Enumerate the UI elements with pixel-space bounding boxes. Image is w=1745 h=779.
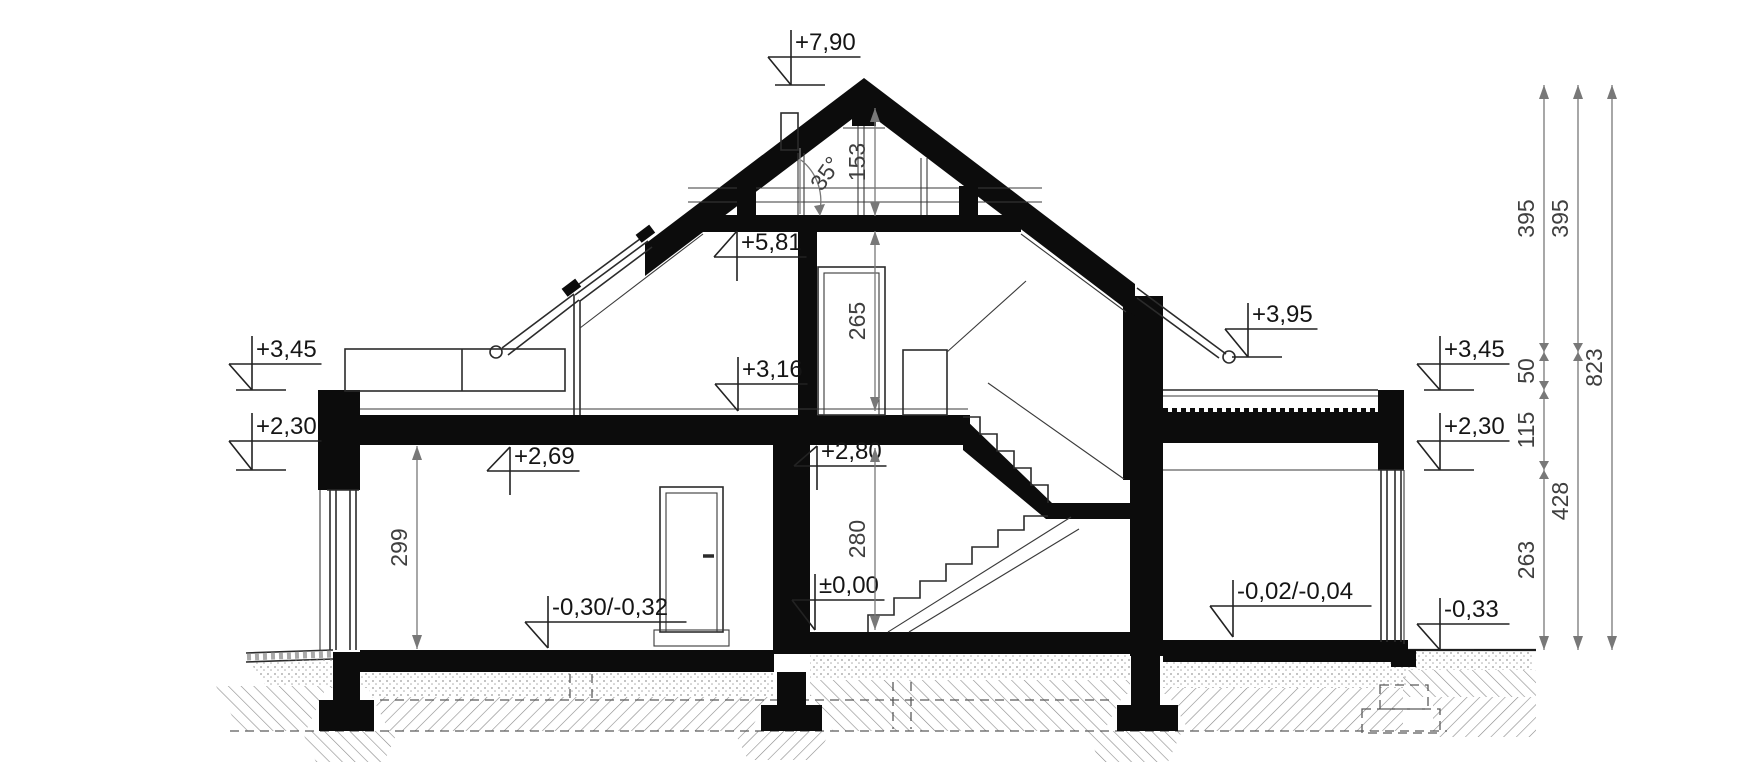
slab-right-room — [1163, 640, 1408, 662]
elevation-label-right-parapet: +3,45 — [1444, 336, 1505, 363]
marker-flag-diagonal — [714, 231, 737, 257]
elevation-marker-left-ceiling-beam: +2,30 — [229, 413, 322, 470]
ground-door-leaf — [666, 493, 717, 632]
elevation-marker-right-eave: +3,95 — [1225, 301, 1318, 357]
elevation-label-left-room-ceiling: +2,69 — [514, 443, 575, 470]
dim-label-left-room-height: 299 — [386, 528, 412, 566]
left-eave-fascia-band — [345, 349, 565, 391]
elevation-label-exterior-grade: -0,33 — [1444, 596, 1499, 623]
gutter-left — [490, 346, 502, 358]
marker-flag-diagonal — [1225, 329, 1248, 357]
roof-angle-label: 35° — [805, 152, 846, 195]
marker-flag-diagonal — [1417, 364, 1440, 390]
angle-arrowhead — [814, 204, 825, 216]
elevation-marker-right-beam: +2,30 — [1417, 413, 1510, 470]
elevation-marker-left-room-floor: -0,30/-0,32 — [525, 594, 687, 648]
elevation-marker-left-eave: +3,45 — [229, 336, 322, 390]
dim-label-gable-height: 153 — [844, 143, 870, 181]
marker-flag-diagonal — [1210, 606, 1233, 637]
architectural-section-drawing: +7,90+5,81+3,45+2,30+2,69+3,16+2,80+3,95… — [0, 0, 1745, 779]
elevation-marker-attic-ceiling: +5,81 — [714, 229, 807, 281]
ground-hatch-left-room — [333, 697, 773, 731]
elevation-marker-left-room-ceiling: +2,69 — [487, 443, 580, 495]
dim-label-attic-room-height: 265 — [844, 302, 870, 340]
marker-flag-diagonal — [1417, 624, 1440, 650]
elevation-label-attic-ceiling: +5,81 — [741, 229, 802, 256]
ground-hatch-hall — [810, 680, 1130, 731]
chain-2-segment-label: 428 — [1547, 482, 1573, 520]
elevation-label-ground-floor: ±0,00 — [819, 572, 879, 599]
lower-flight-steps — [868, 516, 1048, 632]
hall-left-wall — [773, 445, 810, 654]
dim-arrow-up — [1607, 85, 1617, 99]
dimension-chain-3: 823 — [1581, 85, 1617, 650]
foundation-stem-stair — [1131, 655, 1160, 705]
stair-headroom-line — [947, 281, 1026, 352]
roof-window-line-1 — [571, 236, 644, 290]
stairwell-right-wall — [1130, 480, 1163, 656]
dimension-chain-2: 395428 — [1547, 85, 1583, 650]
footing-hatch-mid — [734, 731, 830, 760]
elevation-label-attic-floor: +3,16 — [742, 356, 803, 383]
chain-1-segment-label: 115 — [1513, 412, 1539, 449]
ridge-purlin — [852, 104, 876, 126]
elevation-label-right-beam: +2,30 — [1444, 413, 1505, 440]
slab-hall — [808, 632, 1132, 654]
stair-stringer-1 — [888, 517, 1071, 632]
elevation-marker-attic-floor: +3,16 — [715, 356, 808, 411]
marker-flag-diagonal — [229, 364, 252, 390]
dim-arrow-down — [870, 202, 880, 216]
left-eave-soffit-2 — [508, 300, 579, 355]
roof-window-line-2 — [575, 241, 648, 295]
annotations-layer: +7,90+5,81+3,45+2,30+2,69+3,16+2,80+3,95… — [229, 29, 1617, 650]
dim-arrow-down — [412, 635, 422, 649]
ground-hatch-right-exterior — [1403, 670, 1536, 697]
elevation-marker-right-parapet: +3,45 — [1417, 336, 1510, 390]
foundation-stem-left — [333, 652, 360, 700]
elevation-marker-exterior-grade: -0,33 — [1417, 596, 1510, 650]
marker-flag-diagonal — [525, 622, 548, 648]
section-canvas: +7,90+5,81+3,45+2,30+2,69+3,16+2,80+3,95… — [0, 0, 1745, 779]
dim-arrow-up — [1573, 85, 1583, 99]
footing-hatch-stair — [1086, 731, 1182, 762]
marker-flag-diagonal — [229, 441, 252, 470]
footing-hatch-left — [302, 731, 398, 762]
dimension-chain-1: 39550115263 — [1513, 85, 1549, 650]
right-parapet-beam — [1378, 390, 1404, 470]
subbase-right-room — [1163, 662, 1407, 688]
dim-label-stair-hall-height: 280 — [844, 520, 870, 558]
elevation-label-left-room-floor: -0,30/-0,32 — [552, 594, 668, 621]
elevation-label-left-ceiling-beam: +2,30 — [256, 413, 317, 440]
elevation-label-left-eave: +3,45 — [256, 336, 317, 363]
subbase-hall — [810, 655, 1130, 680]
marker-flag-diagonal — [1417, 441, 1440, 470]
subbase-right-exterior — [1407, 652, 1533, 670]
foundation-base-left — [319, 700, 374, 731]
dim-arrow-up — [412, 446, 422, 460]
upper-flight-and-landing — [963, 417, 1132, 519]
purlin-right — [959, 186, 978, 216]
dimension-attic-room-height: 265 — [844, 231, 880, 411]
left-eave-soffit-1 — [502, 294, 574, 348]
elevation-label-right-room-floor: -0,02/-0,04 — [1237, 578, 1353, 605]
marker-flag-diagonal — [715, 384, 738, 411]
slab-left-room — [360, 650, 774, 672]
foundation-stem-mid — [777, 672, 806, 705]
chain-2-segment-label: 395 — [1547, 199, 1573, 237]
left-wall-beam — [318, 390, 360, 490]
dimension-left-room-height: 299 — [386, 446, 422, 649]
foundation-base-mid — [761, 705, 822, 731]
dim-tick — [1539, 343, 1549, 361]
chain-1-segment-label: 395 — [1513, 199, 1539, 237]
roof-window-line-3 — [580, 247, 652, 301]
stair-guard-wall — [903, 350, 947, 415]
right-knee-wall-upper — [1123, 296, 1163, 480]
chain-1-segment-label: 263 — [1513, 541, 1539, 579]
elevation-label-right-eave: +3,95 — [1252, 301, 1313, 328]
roof-slope-right — [864, 78, 1135, 316]
chain-1-segment-label: 50 — [1513, 358, 1539, 384]
sloped-ceiling-left — [580, 234, 703, 328]
dim-arrow-down — [1607, 636, 1617, 650]
ground-door-frame — [660, 487, 723, 632]
dim-arrow-down — [870, 616, 880, 630]
roof-window-cap-lower — [562, 279, 582, 297]
dim-arrow-down — [1539, 636, 1549, 650]
marker-flag-diagonal — [487, 447, 510, 471]
dimension-stair-hall-height: 280 — [844, 448, 880, 630]
dim-tick — [1539, 381, 1549, 399]
chain-3-segment-label: 823 — [1581, 348, 1607, 386]
stairs — [868, 281, 1132, 632]
dim-tick — [1539, 461, 1549, 479]
foundation-base-stair — [1117, 705, 1178, 731]
dim-arrow-up — [1539, 85, 1549, 99]
attic-stairwell-wall — [798, 230, 817, 416]
terrace-subbase-stipple — [250, 659, 333, 686]
elevation-marker-right-room-floor: -0,02/-0,04 — [1210, 578, 1372, 637]
marker-flag-diagonal — [768, 57, 791, 85]
subbase-left-room — [360, 672, 773, 697]
dim-arrow-down — [1573, 636, 1583, 650]
elevation-marker-ridge: +7,90 — [768, 29, 861, 85]
right-roof-slab — [1163, 412, 1378, 443]
terrace-paver-checker — [247, 654, 333, 657]
purlin-left — [737, 186, 756, 216]
ground-hatch-right-lower — [1433, 697, 1536, 737]
elevation-label-ridge: +7,90 — [795, 29, 856, 56]
dim-arrow-up — [870, 231, 880, 245]
attic-door-leaf — [824, 273, 879, 415]
